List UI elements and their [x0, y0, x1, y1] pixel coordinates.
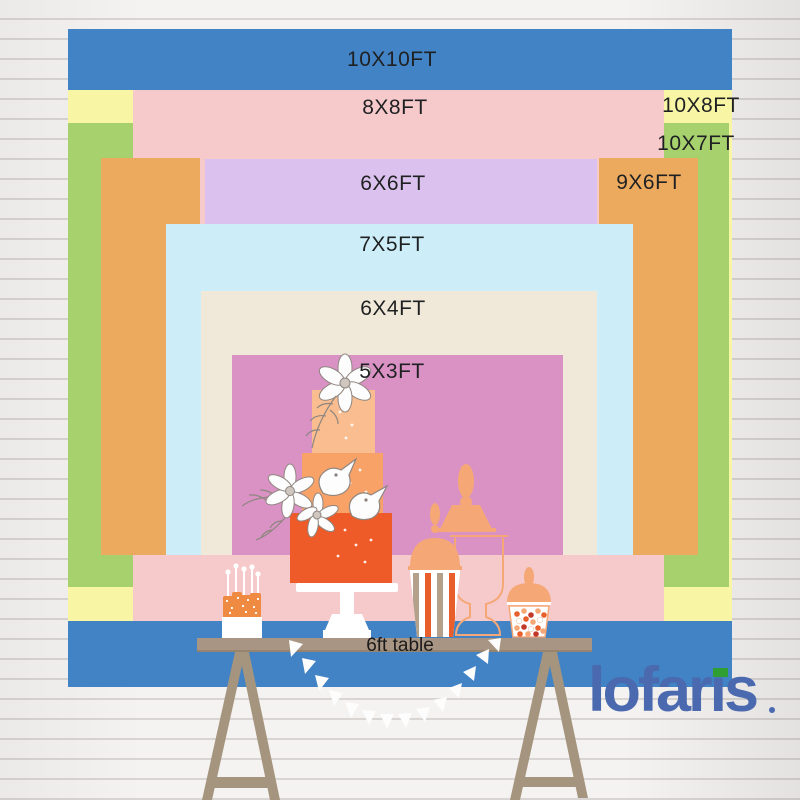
- size-label-10x7: 10X7FT: [657, 132, 735, 156]
- cake-pops-icon: [222, 563, 262, 638]
- logo-green-accent: [713, 668, 728, 677]
- logo-registered-dot-icon: [769, 707, 775, 713]
- trestle-table-icon: [197, 638, 592, 800]
- size-label-6x4: 6X4FT: [360, 297, 426, 321]
- cake-stand-icon: [296, 583, 398, 638]
- size-label-8x8: 8X8FT: [362, 96, 428, 120]
- table-size-label: 6ft table: [366, 635, 434, 657]
- product-image: 10X10FT 10X8FT 10X7FT 8X8FT 9X6FT 6X6FT …: [0, 0, 800, 800]
- candy-jar-silhouette-icon: [436, 464, 496, 532]
- tiered-cake-icon: [242, 354, 398, 638]
- size-label-10x8: 10X8FT: [662, 94, 740, 118]
- size-label-10x10: 10X10FT: [347, 48, 437, 72]
- table-trestle-left: [202, 652, 280, 800]
- size-label-6x6: 6X6FT: [360, 172, 426, 196]
- lofaris-logo: lofarıs: [588, 659, 756, 722]
- size-label-7x5: 7X5FT: [359, 233, 425, 257]
- size-label-9x6: 9X6FT: [616, 171, 682, 195]
- candy-cup-icon: [507, 567, 551, 637]
- size-label-5x3: 5X3FT: [359, 360, 425, 384]
- table-trestle-right: [510, 652, 588, 800]
